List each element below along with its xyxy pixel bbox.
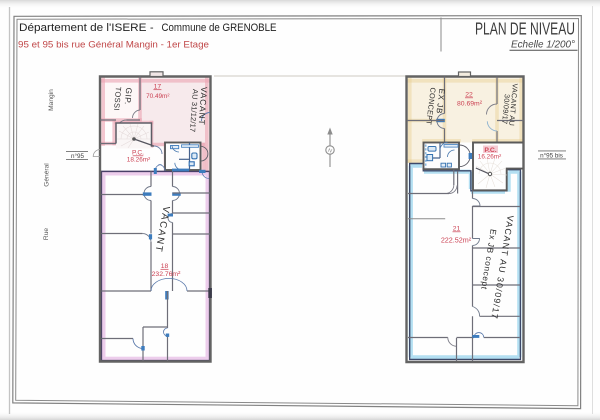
svg-text:GIP.: GIP. (123, 87, 133, 105)
svg-text:222.52m²: 222.52m² (441, 236, 472, 245)
svg-text:22: 22 (465, 92, 473, 99)
svg-text:18.26m²: 18.26m² (127, 156, 150, 163)
svg-text:80.69m²: 80.69m² (457, 101, 483, 108)
svg-text:n°95: n°95 (71, 152, 85, 160)
svg-text:95 et 95 bis rue Général Mangi: 95 et 95 bis rue Général Mangin - 1er Et… (18, 40, 209, 50)
svg-text:Département de l'ISERE: Département de l'ISERE (19, 22, 147, 34)
svg-text:PLAN DE NIVEAU: PLAN DE NIVEAU (475, 19, 575, 39)
svg-text:-: - (150, 22, 154, 34)
svg-text:Commune de GRENOBLE: Commune de GRENOBLE (162, 22, 277, 34)
svg-text:n°95 bis: n°95 bis (540, 152, 563, 160)
svg-text:70.49m²: 70.49m² (146, 93, 169, 100)
svg-text:Mangin: Mangin (48, 89, 55, 111)
svg-text:Rue: Rue (43, 228, 50, 240)
svg-text:Général: Général (44, 163, 51, 187)
svg-text:16.26m²: 16.26m² (478, 154, 501, 161)
svg-text:232.76m²: 232.76m² (152, 271, 181, 278)
svg-text:17: 17 (154, 83, 162, 90)
svg-text:Echelle 1/200°: Echelle 1/200° (511, 39, 575, 51)
